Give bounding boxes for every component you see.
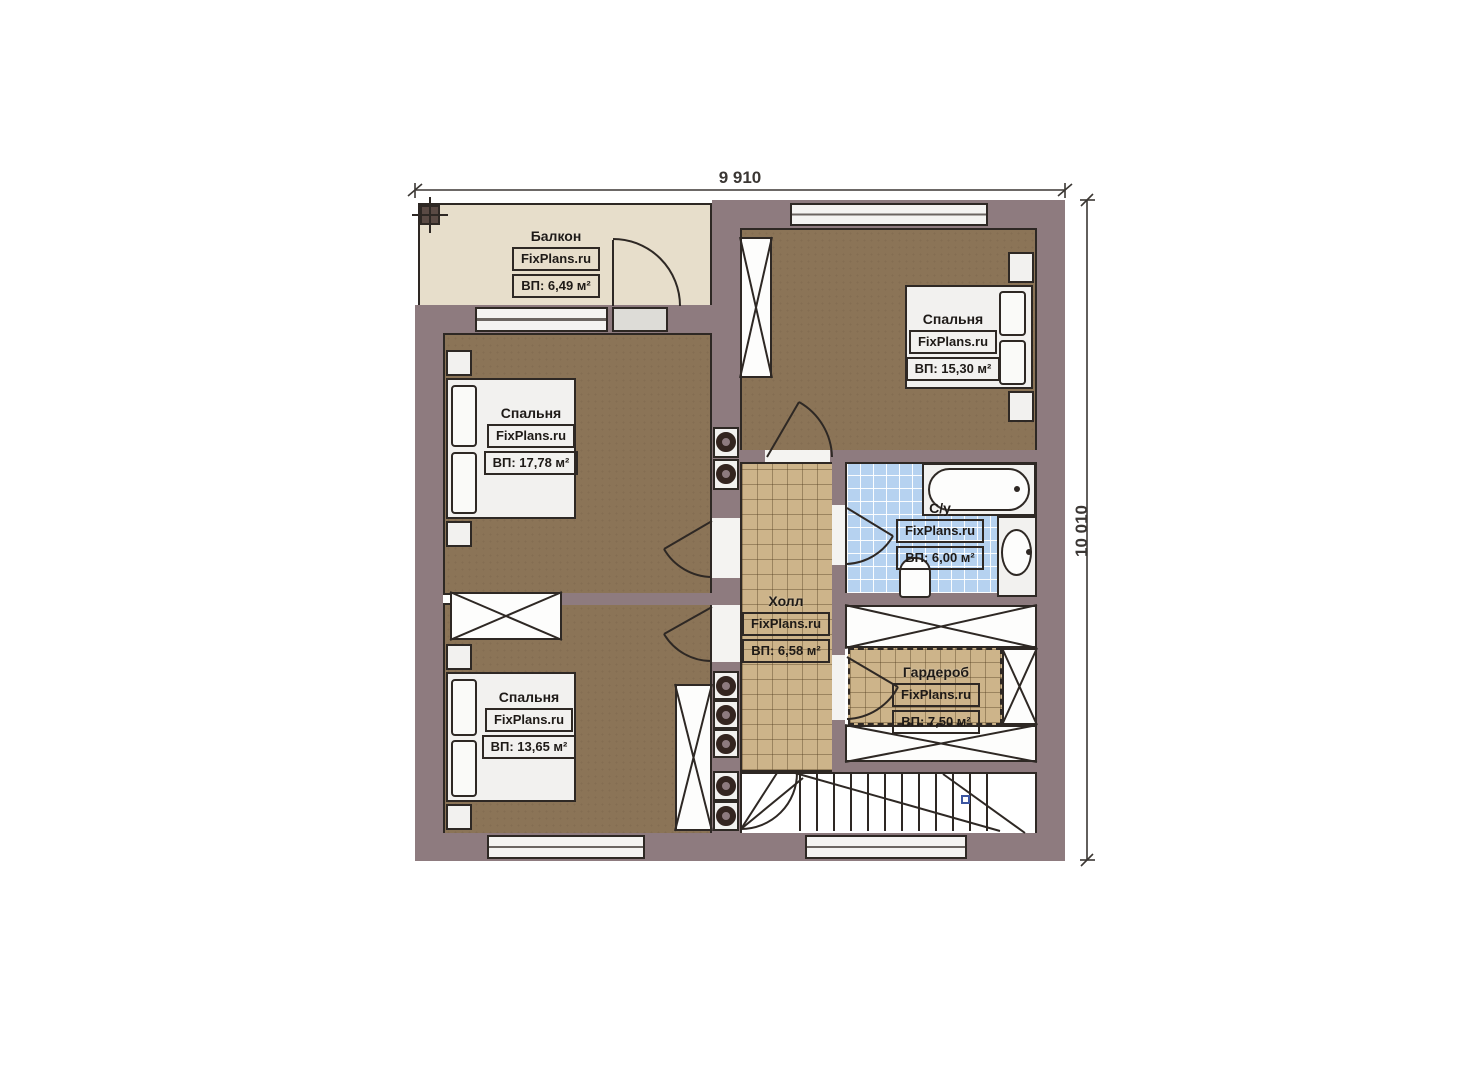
- vent-shaft: [713, 771, 739, 801]
- window-top: [790, 203, 988, 226]
- room-name: Холл: [768, 593, 803, 609]
- wardrobe-unit: [845, 605, 1037, 648]
- window-bottom-right: [805, 835, 967, 859]
- wall-wardrobe-stairs: [832, 762, 1037, 772]
- brand-tag: FixPlans.ru: [896, 519, 984, 543]
- area-tag: ВП: 6,49 м²: [512, 274, 600, 298]
- closet-unit: [675, 684, 712, 831]
- room-name: Гардероб: [903, 664, 969, 680]
- room-label-bathroom: С/у FixPlans.ru ВП: 6,00 м²: [880, 500, 1000, 570]
- room-name: Балкон: [531, 228, 582, 244]
- room-label-bedroom-right: Спальня FixPlans.ru ВП: 15,30 м²: [893, 311, 1013, 381]
- wall-bedroom-divider: [560, 593, 712, 605]
- room-label-balcony: Балкон FixPlans.ru ВП: 6,49 м²: [496, 228, 616, 298]
- sink-tap: [1026, 549, 1032, 555]
- room-name: Спальня: [501, 405, 561, 421]
- area-tag: ВП: 6,58 м²: [742, 639, 830, 663]
- area-tag: ВП: 6,00 м²: [896, 546, 984, 570]
- brand-tag: FixPlans.ru: [487, 424, 575, 448]
- nightstand: [446, 804, 472, 830]
- stairs-floor: [740, 772, 1037, 835]
- wall-left: [415, 305, 443, 861]
- window-balcony: [475, 307, 608, 332]
- dimension-width-label: 9 910: [690, 168, 790, 188]
- room-name: С/у: [929, 500, 951, 516]
- room-name: Спальня: [499, 689, 559, 705]
- wall-right: [1037, 200, 1065, 861]
- nightstand: [446, 350, 472, 376]
- closet-unit: [450, 592, 562, 640]
- area-tag: ВП: 7,50 м²: [892, 710, 980, 734]
- nightstand: [446, 521, 472, 547]
- door-opening-bedroom-right: [765, 450, 830, 462]
- brand-tag: FixPlans.ru: [742, 612, 830, 636]
- floor-plan-canvas: 9 910 10 010 Балкон FixPlans.ru ВП: 6,49…: [0, 0, 1473, 1080]
- area-tag: ВП: 17,78 м²: [484, 451, 579, 475]
- closet-unit: [740, 237, 772, 378]
- vent-shaft: [713, 427, 739, 458]
- nightstand: [1008, 391, 1034, 422]
- brand-tag: FixPlans.ru: [892, 683, 980, 707]
- window-bottom-left: [487, 835, 645, 859]
- area-tag: ВП: 13,65 м²: [482, 735, 577, 759]
- vent-shaft: [713, 671, 739, 700]
- wardrobe-unit: [1002, 648, 1037, 725]
- balcony-door-panel: [612, 307, 668, 332]
- room-label-wardrobe: Гардероб FixPlans.ru ВП: 7,50 м²: [876, 664, 996, 734]
- vent-shaft: [713, 700, 739, 729]
- room-label-bedroom-bottom: Спальня FixPlans.ru ВП: 13,65 м²: [469, 689, 589, 759]
- room-label-hall: Холл FixPlans.ru ВП: 6,58 м²: [726, 593, 846, 663]
- room-label-bedroom-left: Спальня FixPlans.ru ВП: 17,78 м²: [471, 405, 591, 475]
- dimension-height-label: 10 010: [1072, 479, 1092, 583]
- area-tag: ВП: 15,30 м²: [906, 357, 1001, 381]
- vent-shaft: [713, 459, 739, 490]
- room-name: Спальня: [923, 311, 983, 327]
- brand-tag: FixPlans.ru: [909, 330, 997, 354]
- brand-tag: FixPlans.ru: [512, 247, 600, 271]
- door-opening-bedroom-left: [712, 518, 740, 578]
- vent-shaft: [713, 729, 739, 758]
- brand-tag: FixPlans.ru: [485, 708, 573, 732]
- nightstand: [446, 644, 472, 670]
- vent-shaft: [713, 801, 739, 831]
- door-opening-wardrobe: [832, 655, 845, 720]
- nightstand: [1008, 252, 1034, 283]
- door-opening-bathroom: [832, 505, 845, 565]
- bathtub-tap: [1014, 486, 1020, 492]
